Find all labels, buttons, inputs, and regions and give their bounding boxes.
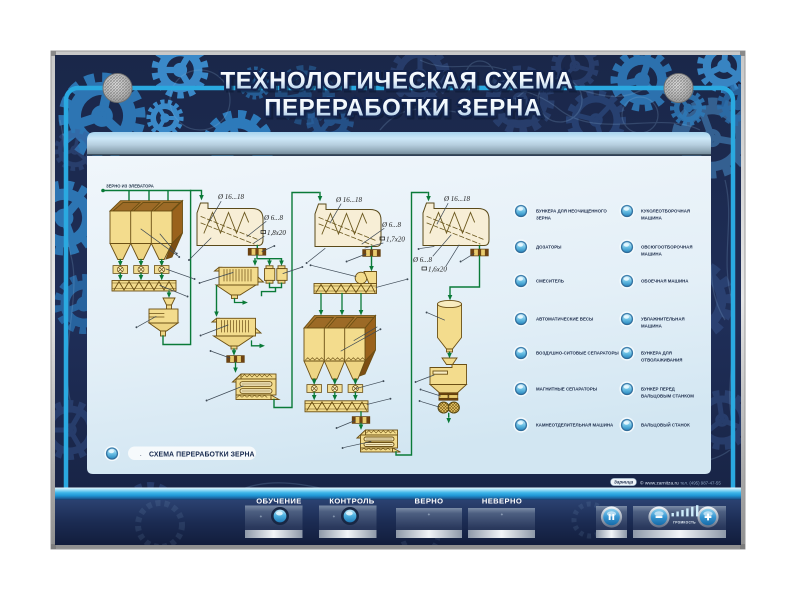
svg-text:МАШИНА: МАШИНА xyxy=(641,251,663,256)
svg-text:+: + xyxy=(428,512,431,517)
svg-text:КАМНЕОТДЕЛИТЕЛЬНАЯ МАШИНА: КАМНЕОТДЕЛИТЕЛЬНАЯ МАШИНА xyxy=(536,423,614,428)
svg-text:ВАЛЬЦОВЫЙ СТАНОК: ВАЛЬЦОВЫЙ СТАНОК xyxy=(641,423,690,428)
svg-text:+: + xyxy=(260,514,263,519)
svg-text:Ø 6...8: Ø 6...8 xyxy=(263,214,284,222)
svg-text:БУНКЕР ПЕРЕД: БУНКЕР ПЕРЕД xyxy=(641,387,676,392)
svg-text:МАГНИТНЫЕ СЕПАРАТОРЫ: МАГНИТНЫЕ СЕПАРАТОРЫ xyxy=(536,387,597,392)
svg-text:Ø 6...8: Ø 6...8 xyxy=(412,256,433,264)
svg-text:ВЕРНО: ВЕРНО xyxy=(414,497,443,506)
svg-text:Ø 6...8: Ø 6...8 xyxy=(381,221,402,229)
svg-text:ЗЕРНО ИЗ ЭЛЕВАТОРА: ЗЕРНО ИЗ ЭЛЕВАТОРА xyxy=(106,183,154,188)
svg-text:УВЛАЖНИТЕЛЬНАЯ: УВЛАЖНИТЕЛЬНАЯ xyxy=(641,317,685,322)
svg-text:ОБОЕЧНАЯ МАШИНА: ОБОЕЧНАЯ МАШИНА xyxy=(641,279,689,284)
svg-text:Зарница: Зарница xyxy=(614,480,634,485)
svg-text:МАШИНА: МАШИНА xyxy=(641,215,663,220)
svg-text:© www.zarnitza.ru тел. (495) 9: © www.zarnitza.ru тел. (495) 987-47-55 xyxy=(640,479,721,486)
svg-text:СХЕМА ПЕРЕРАБОТКИ ЗЕРНА: СХЕМА ПЕРЕРАБОТКИ ЗЕРНА xyxy=(149,452,255,459)
svg-text:ГРОМКОСТЬ: ГРОМКОСТЬ xyxy=(673,521,696,525)
svg-text:ОВСЮГООТБОРОЧНАЯ: ОВСЮГООТБОРОЧНАЯ xyxy=(641,245,693,250)
svg-text:МАШИНА: МАШИНА xyxy=(641,323,663,328)
svg-text:СМЕСИТЕЛЬ: СМЕСИТЕЛЬ xyxy=(536,279,564,284)
svg-text:ДОЗАТОРЫ: ДОЗАТОРЫ xyxy=(536,245,561,250)
svg-text:Ø 16...18: Ø 16...18 xyxy=(443,195,471,203)
svg-text:+: + xyxy=(333,514,336,519)
svg-text:1,6х20: 1,6х20 xyxy=(428,266,447,274)
svg-text:НЕВЕРНО: НЕВЕРНО xyxy=(482,497,522,506)
svg-text:ПЕРЕРАБОТКИ ЗЕРНА: ПЕРЕРАБОТКИ ЗЕРНА xyxy=(264,95,542,122)
svg-text:КОНТРОЛЬ: КОНТРОЛЬ xyxy=(329,497,374,506)
svg-text:БУНКЕРА ДЛЯ: БУНКЕРА ДЛЯ xyxy=(641,351,672,356)
svg-text:ОТВОЛАЖИВАНИЯ: ОТВОЛАЖИВАНИЯ xyxy=(641,357,682,362)
svg-text:ВОЗДУШНО-СИТОВЫЕ СЕПАРАТОРЫ: ВОЗДУШНО-СИТОВЫЕ СЕПАРАТОРЫ xyxy=(536,351,619,356)
svg-text:ТЕХНОЛОГИЧЕСКАЯ СХЕМА: ТЕХНОЛОГИЧЕСКАЯ СХЕМА xyxy=(221,68,574,95)
svg-text:КУКОЛЕОТБОРОЧНАЯ: КУКОЛЕОТБОРОЧНАЯ xyxy=(641,209,690,214)
svg-text:Ø 16...18: Ø 16...18 xyxy=(335,196,363,204)
svg-text:ОБУЧЕНИЕ: ОБУЧЕНИЕ xyxy=(256,497,302,506)
svg-text:1,8х20: 1,8х20 xyxy=(267,229,286,237)
svg-text:+: + xyxy=(501,512,504,517)
svg-text:ВАЛЬЦОВЫМ СТАНКОМ: ВАЛЬЦОВЫМ СТАНКОМ xyxy=(641,393,694,398)
svg-text:АВТОМАТИЧЕСКИЕ ВЕСЫ: АВТОМАТИЧЕСКИЕ ВЕСЫ xyxy=(536,317,593,322)
svg-text:1,7х20: 1,7х20 xyxy=(386,236,405,244)
svg-text:БУНКЕРА ДЛЯ НЕОЧИЩЕННОГО: БУНКЕРА ДЛЯ НЕОЧИЩЕННОГО xyxy=(536,209,607,214)
svg-text:ЗЕРНА: ЗЕРНА xyxy=(536,215,552,220)
svg-text:Ø 16...18: Ø 16...18 xyxy=(217,193,245,201)
